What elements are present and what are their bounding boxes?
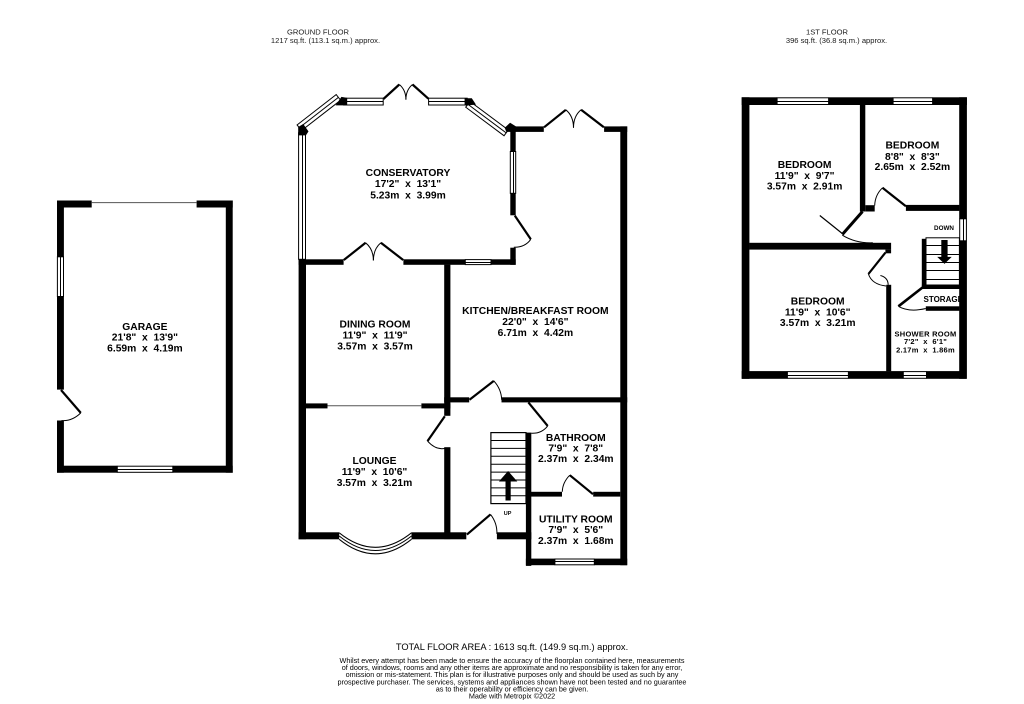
svg-text:11'9" x 10'6": 11'9" x 10'6" [342, 467, 408, 478]
svg-text:UP: UP [504, 511, 512, 517]
svg-text:17'2" x 13'1": 17'2" x 13'1" [375, 179, 441, 190]
svg-text:STORAGE: STORAGE [924, 295, 964, 304]
svg-text:UTILITY ROOM: UTILITY ROOM [539, 515, 613, 526]
svg-text:1217 sq.ft. (113.1 sq.m.) appr: 1217 sq.ft. (113.1 sq.m.) approx. [271, 36, 380, 45]
svg-text:2.65m x 2.52m: 2.65m x 2.52m [875, 162, 951, 173]
svg-text:LOUNGE: LOUNGE [352, 456, 396, 467]
svg-text:22'0" x 14'6": 22'0" x 14'6" [502, 317, 568, 328]
svg-text:GARAGE: GARAGE [122, 322, 167, 333]
svg-text:BEDROOM: BEDROOM [886, 141, 940, 152]
svg-text:7'9" x 7'8": 7'9" x 7'8" [548, 443, 603, 454]
svg-text:CONSERVATORY: CONSERVATORY [366, 168, 451, 179]
svg-text:DOWN: DOWN [934, 225, 954, 232]
svg-text:3.57m x 3.57m: 3.57m x 3.57m [337, 341, 413, 352]
svg-text:BEDROOM: BEDROOM [778, 160, 832, 171]
svg-text:396 sq.ft. (36.8 sq.m.) approx: 396 sq.ft. (36.8 sq.m.) approx. [786, 36, 887, 45]
svg-text:21'8" x 13'9": 21'8" x 13'9" [112, 333, 178, 344]
svg-text:11'9" x 9'7": 11'9" x 9'7" [775, 171, 835, 182]
svg-text:11'9" x 11'9": 11'9" x 11'9" [342, 330, 407, 341]
svg-text:2.37m x 1.68m: 2.37m x 1.68m [538, 536, 614, 547]
svg-text:Made with Metropix ©2022: Made with Metropix ©2022 [469, 692, 555, 701]
svg-text:TOTAL FLOOR AREA : 1613 sq.ft.: TOTAL FLOOR AREA : 1613 sq.ft. (149.9 sq… [396, 642, 628, 652]
svg-text:3.57m x 2.91m: 3.57m x 2.91m [767, 182, 843, 193]
svg-text:6.71m x 4.42m: 6.71m x 4.42m [498, 328, 574, 339]
svg-text:11'9" x 10'6": 11'9" x 10'6" [785, 308, 851, 319]
svg-text:7'9" x 5'6": 7'9" x 5'6" [548, 525, 603, 536]
svg-text:BEDROOM: BEDROOM [791, 297, 845, 308]
svg-text:2.37m x 2.34m: 2.37m x 2.34m [538, 454, 614, 465]
svg-text:3.57m x 3.21m: 3.57m x 3.21m [337, 478, 413, 489]
svg-text:5.23m x 3.99m: 5.23m x 3.99m [370, 190, 446, 201]
svg-text:KITCHEN/BREAKFAST ROOM: KITCHEN/BREAKFAST ROOM [462, 306, 608, 317]
svg-text:3.57m x 3.21m: 3.57m x 3.21m [780, 318, 856, 329]
svg-text:DINING ROOM: DINING ROOM [340, 320, 411, 331]
svg-text:2.17m x 1.86m: 2.17m x 1.86m [896, 346, 955, 355]
svg-text:6.59m x 4.19m: 6.59m x 4.19m [107, 343, 183, 354]
